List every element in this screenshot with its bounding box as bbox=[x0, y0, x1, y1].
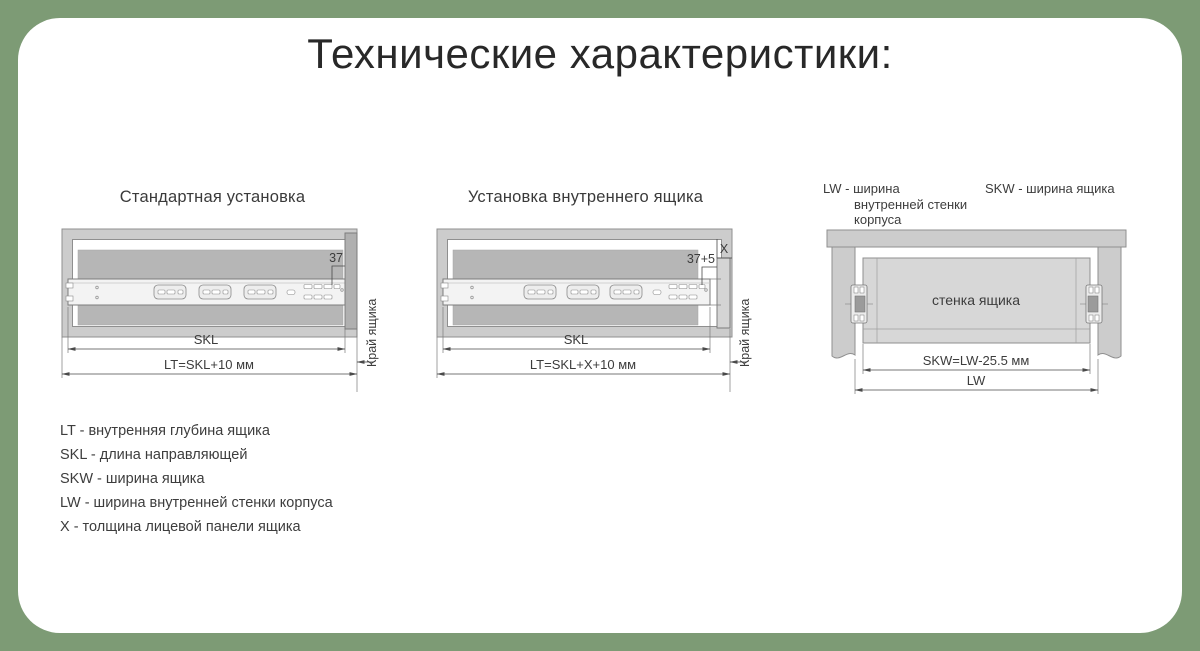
cabinet-top bbox=[827, 230, 1126, 247]
diagram-inner-title: Установка внутреннего ящика bbox=[413, 188, 758, 207]
rail-slot-group bbox=[524, 285, 556, 299]
legend-item-lt: LT - внутренняя глубина ящика bbox=[60, 419, 333, 443]
slide-rail bbox=[441, 279, 710, 305]
legend-item-lw: LW - ширина внутренней стенки корпуса bbox=[60, 491, 333, 515]
legend: LT - внутренняя глубина ящика SKL - длин… bbox=[60, 419, 333, 539]
slide-rail bbox=[66, 279, 345, 305]
drawer-front-panel bbox=[717, 258, 730, 328]
legend-item-skl: SKL - длина направляющей bbox=[60, 443, 333, 467]
skw-dim-label: SKW=LW-25.5 мм bbox=[923, 353, 1030, 368]
rail-slot-group bbox=[567, 285, 599, 299]
drawer-wall-label: стенка ящика bbox=[932, 292, 1020, 308]
diagram-standard-title: Стандартная установка bbox=[40, 188, 385, 207]
x-dim-label: X bbox=[720, 242, 729, 256]
page-title: Технические характеристики: bbox=[0, 30, 1200, 78]
legend-item-x: X - толщина лицевой панели ящика bbox=[60, 515, 333, 539]
rail-slot-group bbox=[154, 285, 186, 299]
drawer-front-edge bbox=[345, 233, 357, 329]
diagram-inner: X 37+5 SKL LT=SKL+X+10 мм Край ящика bbox=[430, 222, 775, 397]
diagram-standard: 37 SKL LT=SKL+10 мм Край ящика bbox=[55, 222, 400, 397]
rail-slot-group bbox=[199, 285, 231, 299]
lt-dim-label: LT=SKL+10 мм bbox=[164, 357, 254, 372]
lw-definition-label: LW - ширина внутренней стенки корпуса bbox=[823, 181, 967, 228]
rail-slot-group bbox=[610, 285, 642, 299]
diagram-width: стенка ящика SKW=LW-25.5 мм LW bbox=[815, 228, 1145, 408]
offset-dim-label: 37 bbox=[329, 251, 343, 265]
legend-item-skw: SKW - ширина ящика bbox=[60, 467, 333, 491]
offset-dim-label: 37+5 bbox=[687, 252, 715, 266]
skl-dim-label: SKL bbox=[564, 332, 589, 347]
drawer-edge-label: Край ящика bbox=[365, 299, 379, 367]
skw-definition-label: SKW - ширина ящика bbox=[985, 181, 1115, 196]
skl-dim-label: SKL bbox=[194, 332, 219, 347]
lt-dim-label: LT=SKL+X+10 мм bbox=[530, 357, 636, 372]
drawer-edge-label: Край ящика bbox=[738, 299, 752, 367]
rail-slot-group bbox=[244, 285, 276, 299]
lw-dim-label: LW bbox=[967, 373, 986, 388]
